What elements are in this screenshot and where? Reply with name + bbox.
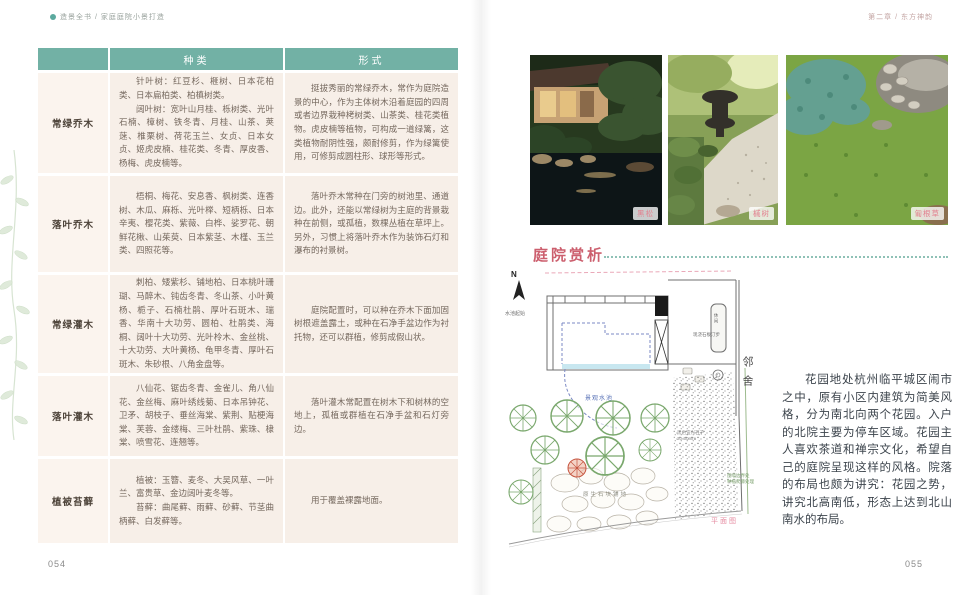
- vine-label-line1: 围墙边界处: [727, 473, 754, 479]
- plant-table: 种类 形式 常绿乔木 针叶树：红豆杉、榧树、日本花柏类、日本扁柏类、柏槙树类。 …: [38, 48, 458, 543]
- stepping-slab-label: 现浇石板汀步: [693, 332, 720, 338]
- book-spread: 造景全书 / 家庭庭院小景打造 第二章 / 东方神韵 种类 形式 常绿乔木 针叶…: [0, 0, 963, 595]
- left-page-number: 054: [48, 559, 66, 569]
- species-paragraph: 阔叶树：宽叶山月桂、栎树类、光叶石楠、樟树、铁冬青、月桂、山茶、荚蒾、椎栗树、荷…: [119, 103, 274, 171]
- species-paragraph: 梧桐、梅花、安息香、枫树类、连香树、木瓜、麻栎、光叶榉、短柄栎、日本辛夷、樱花类…: [119, 190, 274, 258]
- garden-plan-diagram: N 水池起始 景观水池 现浇石板汀步 休闲 邻舍 原生石块铺地 黑色宜兴石子 3…: [505, 268, 775, 548]
- photo-label-maple: 槭树: [749, 207, 774, 220]
- row-species-deciduous-shrub: 八仙花、锯齿冬青、金雀儿、角八仙花、金丝梅、麻叶绣线菊、日本吊钟花、卫矛、胡枝子…: [110, 376, 283, 456]
- row-form-groundcover-moss: 用于覆盖裸露地面。: [285, 459, 458, 543]
- photo-label-creeping-grass: 匍根草: [911, 207, 945, 220]
- row-species-groundcover-moss: 植被：玉簪、麦冬、大吴风草、一叶兰、富贵草、金边阔叶麦冬等。 苔藓：曲尾藓、雨藓…: [110, 459, 283, 543]
- right-page-number: 055: [905, 559, 923, 569]
- species-paragraph: 苔藓：曲尾藓、雨藓、砂藓、节茎曲柄藓、白发藓等。: [119, 501, 274, 528]
- row-category-groundcover-moss: 植被苔藓: [38, 459, 108, 543]
- gravel-label-line1: 黑色宜兴石子: [677, 430, 704, 436]
- plan-caption: 平面图: [711, 516, 738, 526]
- plan-drawing: [505, 268, 775, 548]
- north-label: N: [511, 270, 517, 279]
- photo-groundcover-moss: 匍根草: [786, 55, 948, 225]
- species-paragraph: 刺柏、矮紫杉、铺地柏、日本桃叶珊瑚、马醉木、钝齿冬青、冬山茶、小叶黄杨、栀子、石…: [119, 276, 274, 371]
- neighbor-house-label: 邻舍: [739, 356, 755, 394]
- right-running-head: 第二章 / 东方神韵: [868, 12, 933, 22]
- form-paragraph: 庭院配置时，可以种在乔木下面加固树根遮盖露土，或种在石净手盆边作为衬托物，还可以…: [294, 304, 449, 345]
- species-paragraph: 八仙花、锯齿冬青、金雀儿、角八仙花、金丝梅、麻叶绣线菊、日本吊钟花、卫矛、胡枝子…: [119, 382, 274, 450]
- stone-paving-label: 原生石块铺地: [583, 490, 628, 498]
- gravel-label-line2: 30-50mm: [677, 436, 704, 442]
- teal-dot-icon: [50, 14, 56, 20]
- row-species-evergreen-shrub: 刺柏、矮紫杉、铺地柏、日本桃叶珊瑚、马醉木、钝齿冬青、冬山茶、小叶黄杨、栀子、石…: [110, 275, 283, 373]
- species-paragraph: 针叶树：红豆杉、榧树、日本花柏类、日本扁柏类、柏槙树类。: [119, 75, 274, 102]
- photo-stone-lantern: 槭树: [668, 55, 778, 225]
- form-paragraph: 落叶灌木常配置在树木下和树林的空地上，孤植或群植在石净手盆和石灯旁边。: [294, 396, 449, 437]
- table-header-form: 形式: [285, 48, 458, 70]
- row-species-deciduous-tree: 梧桐、梅花、安息香、枫树类、连香树、木瓜、麻栎、光叶榉、短柄栎、日本辛夷、樱花类…: [110, 176, 283, 272]
- row-form-evergreen-shrub: 庭院配置时，可以种在乔木下面加固树根遮盖露土，或种在石净手盆边作为衬托物，还可以…: [285, 275, 458, 373]
- garden-description-paragraph: 花园地处杭州临平城区闹市之中，原有小区内建筑为简美风格，分为南北向两个花园。入户…: [782, 372, 952, 530]
- left-running-head: 造景全书 / 家庭庭院小景打造: [50, 12, 165, 22]
- table-header-species: 种类: [110, 48, 283, 70]
- pool-start-label: 水池起始: [505, 310, 525, 317]
- form-paragraph: 落叶乔木常种在门旁的树池里、通道边。此外，还能以常绿树为主庭的背景栽种在前侧，或…: [294, 190, 449, 258]
- photo-pond-garden: 黑松: [530, 55, 662, 225]
- page-gutter: [471, 0, 491, 595]
- left-running-head-text: 造景全书 / 家庭庭院小景打造: [60, 12, 165, 22]
- vine-label-line2: 种植爬藤处理: [727, 479, 754, 485]
- table-header-empty: [38, 48, 108, 70]
- row-species-evergreen-tree: 针叶树：红豆杉、榧树、日本花柏类、日本扁柏类、柏槙树类。 阔叶树：宽叶山月桂、栎…: [110, 73, 283, 173]
- section-title: 庭院赏析: [533, 244, 605, 265]
- leisure-label: 休闲: [713, 313, 719, 324]
- leaf-branch-decoration: [0, 150, 34, 445]
- photo-label-black-pine: 黑松: [633, 207, 658, 220]
- row-form-deciduous-shrub: 落叶灌木常配置在树木下和树林的空地上，孤植或群植在石净手盆和石灯旁边。: [285, 376, 458, 456]
- row-form-evergreen-tree: 挺拔秀丽的常绿乔木，常作为庭院造景的中心，作为主体树木沿着庭园的四周或者边界栽种…: [285, 73, 458, 173]
- vine-wall-label: 围墙边界处 种植爬藤处理: [727, 473, 754, 485]
- form-paragraph: 用于覆盖裸露地面。: [294, 494, 449, 508]
- row-category-evergreen-tree: 常绿乔木: [38, 73, 108, 173]
- species-paragraph: 植被：玉簪、麦冬、大吴风草、一叶兰、富贵草、金边阔叶麦冬等。: [119, 474, 274, 501]
- row-category-deciduous-tree: 落叶乔木: [38, 176, 108, 272]
- pool-label: 景观水池: [585, 393, 613, 402]
- row-form-deciduous-tree: 落叶乔木常种在门旁的树池里、通道边。此外，还能以常绿树为主庭的背景栽种在前侧，或…: [285, 176, 458, 272]
- dotted-leader-line: [604, 256, 948, 258]
- gravel-label: 黑色宜兴石子 30-50mm: [677, 430, 704, 442]
- row-category-deciduous-shrub: 落叶灌木: [38, 376, 108, 456]
- row-category-evergreen-shrub: 常绿灌木: [38, 275, 108, 373]
- form-paragraph: 挺拔秀丽的常绿乔木，常作为庭院造景的中心，作为主体树木沿着庭园的四周或者边界栽种…: [294, 82, 449, 164]
